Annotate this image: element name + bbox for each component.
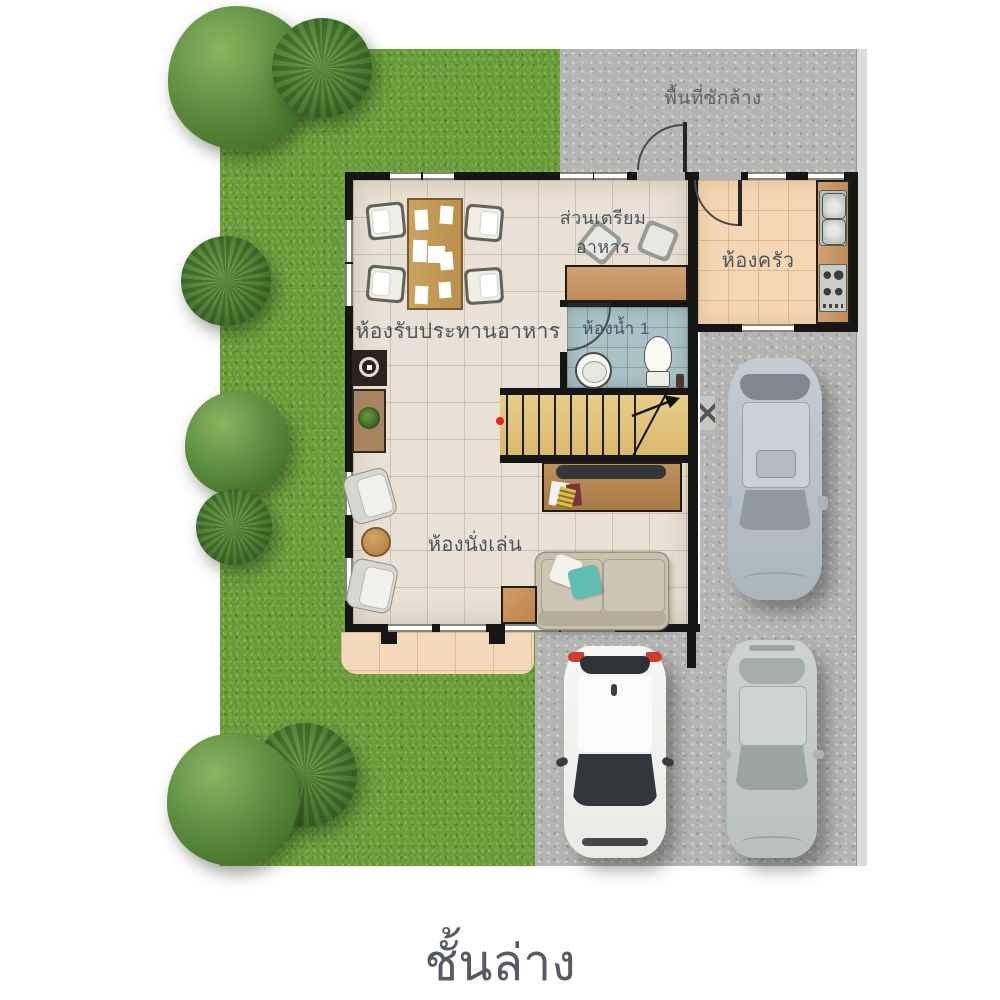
potted-plant [358, 407, 380, 429]
room-label-dining: ห้องรับประทานอาหาร [338, 315, 578, 348]
side-mirror [720, 750, 731, 759]
window [423, 172, 454, 180]
stair-marker-dot [496, 417, 504, 425]
tree [272, 18, 372, 118]
place-setting [438, 282, 451, 299]
tv [556, 465, 666, 479]
car-suv-gray [728, 358, 822, 600]
tree [185, 392, 289, 496]
place-setting [439, 251, 454, 270]
toilet-tank [646, 371, 670, 387]
dining-chair [464, 203, 505, 242]
sideboard [352, 389, 386, 453]
window [345, 264, 353, 306]
roof [739, 686, 807, 746]
staircase [500, 395, 688, 455]
decor-dot [367, 365, 372, 370]
floor-title: ชั้นล่าง [0, 924, 1000, 1000]
window [440, 624, 486, 632]
windshield [738, 490, 812, 530]
stair-treads [506, 395, 644, 455]
place-setting [414, 210, 428, 231]
terrace [341, 632, 534, 674]
laundry-door [683, 122, 687, 172]
room-label-prep: ส่วนเตรียมอาหาร [533, 203, 673, 261]
coffee-table [361, 527, 391, 557]
dining-chair [365, 201, 407, 241]
terrace-pillar [381, 632, 397, 644]
place-setting [439, 206, 453, 225]
kitchen-door [738, 180, 742, 226]
rear-window [580, 656, 650, 674]
antenna [611, 684, 617, 696]
side-mirror [813, 750, 824, 759]
window [345, 220, 353, 262]
gas-stove [819, 264, 847, 312]
basin-bowl [582, 361, 607, 383]
car-sedan-silver [727, 640, 817, 858]
stove-knobs [823, 304, 843, 308]
kitchen-sink [819, 190, 847, 246]
window [742, 324, 794, 332]
sofa-cushion [603, 559, 665, 613]
display-cabinet [352, 350, 387, 386]
kitchen-doorway [699, 172, 741, 180]
window [390, 172, 421, 180]
terrace-pillar [489, 632, 505, 644]
floor-plan-scene: พื้นที่ซักล้าง ส่วนเตรียมอาหาร ห้องครัว … [0, 0, 1000, 1000]
rear-window [739, 658, 805, 684]
sink-basin [822, 219, 846, 245]
place-setting [413, 240, 428, 262]
window [808, 172, 844, 180]
window [388, 624, 432, 632]
tree [181, 236, 271, 326]
dining-chair [464, 267, 504, 306]
window [560, 172, 593, 180]
room-label-kitchen: ห้องครัว [698, 244, 818, 276]
windshield [735, 746, 809, 790]
tree [196, 489, 272, 565]
stair-direction-arrow [630, 393, 682, 419]
place-setting [415, 286, 429, 305]
sunroof [756, 450, 796, 478]
dining-table [407, 198, 463, 310]
room-label-laundry: พื้นที่ซักล้าง [628, 83, 798, 113]
waste-bin [676, 374, 684, 388]
prep-counter [565, 265, 688, 302]
window [748, 172, 786, 180]
sofa-backrest [538, 611, 666, 626]
dining-chair [366, 264, 407, 303]
room-label-bathroom: ห้องน้ำ 1 [566, 315, 666, 342]
rear-window [740, 374, 810, 400]
grille [582, 838, 648, 846]
sink-basin [822, 193, 846, 219]
tree [167, 734, 299, 866]
trunk-light-bar [749, 645, 795, 651]
yard-wall-stub [687, 632, 696, 668]
window [594, 172, 627, 180]
stair-top-rail [500, 388, 698, 395]
hood-line [741, 836, 803, 848]
hood-line [742, 572, 808, 586]
sofa [536, 553, 668, 629]
room-label-living: ห้องนั่งเล่น [395, 528, 555, 560]
side-mirror [722, 496, 732, 510]
ac-outdoor-unit [700, 396, 715, 430]
side-table [501, 586, 537, 624]
laundry-doorway [637, 172, 685, 180]
windshield [572, 754, 658, 806]
car-hatchback-white [564, 646, 666, 858]
wash-basin [575, 352, 612, 389]
side-mirror [818, 496, 828, 510]
right-wall [688, 172, 698, 632]
